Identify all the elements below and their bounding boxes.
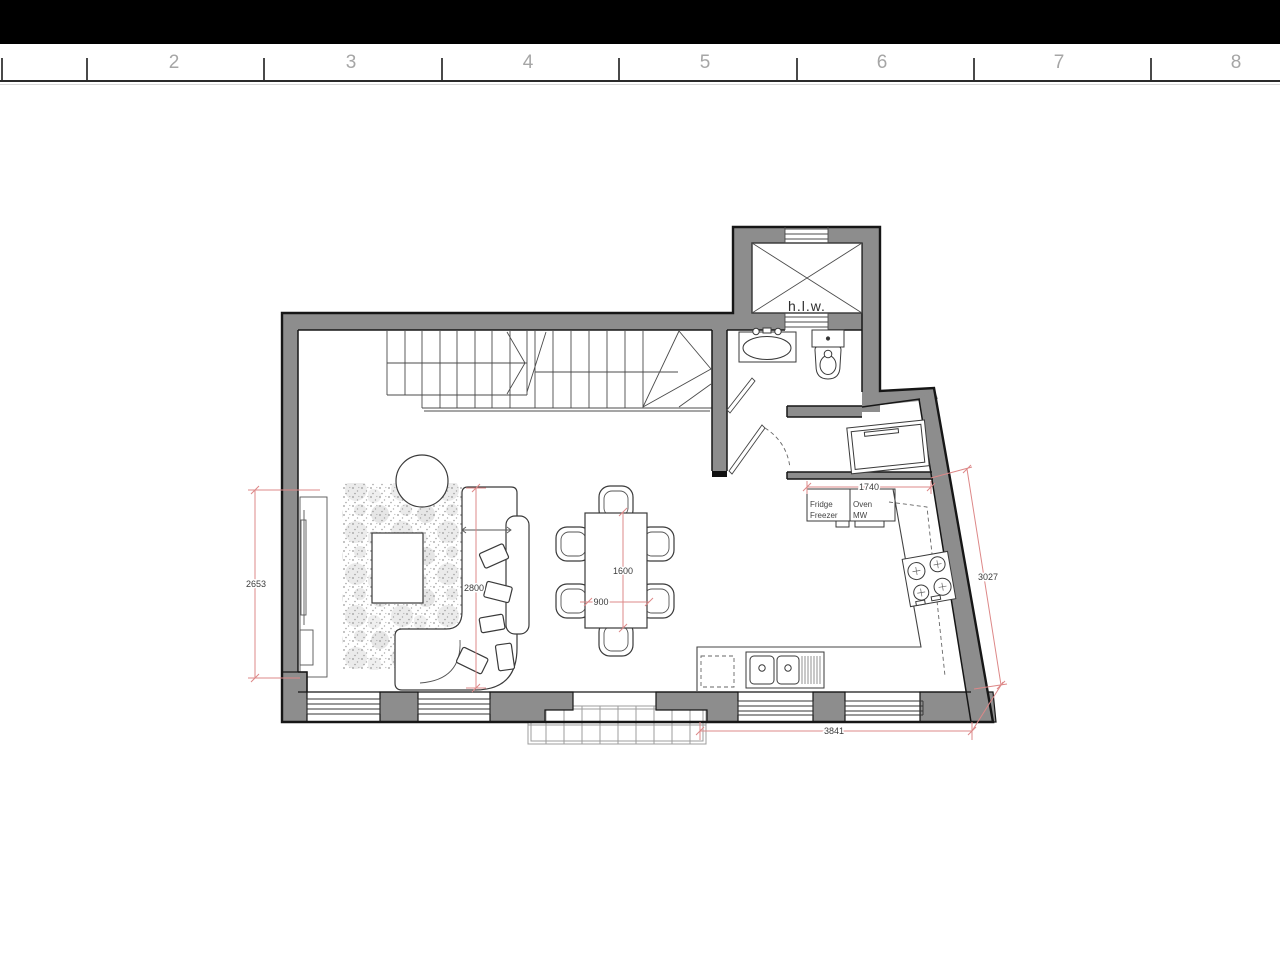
hob [902,551,956,606]
kitchen-unit-labels: Fridge Freezer Oven MW [810,500,872,520]
kitchen-sink [746,652,824,688]
fridge-label-line1: Fridge [810,500,833,509]
dimension-kitchen-side: 3027 [978,572,998,582]
tv-media-unit [300,497,327,677]
dimension-kitchen-run: 3841 [824,726,844,736]
round-side-table [396,455,448,507]
patio-deck [528,706,706,744]
oven-label-line1: Oven [853,500,872,509]
dimension-table-width: 900 [593,597,608,607]
staircase [387,331,712,411]
doors [727,378,790,474]
floor-plan: 2653 2800 1600 900 1740 3027 3841 h.l.w.… [0,0,1280,960]
dishwasher-dashed [701,656,734,687]
dimension-living-depth: 2653 [246,579,266,589]
dimension-living-width: 2800 [464,583,484,593]
dimension-table-length: 1600 [613,566,633,576]
fridge-label-line2: Freezer [810,511,838,520]
oven-label-line2: MW [853,511,868,520]
toilet [812,330,844,379]
utility-unit [847,420,929,474]
app-window: 2 3 4 5 6 7 8 [0,0,1280,960]
basin [739,328,796,362]
coffee-table [372,533,423,603]
dimension-units-run: 1740 [859,482,879,492]
lift-label: h.l.w. [788,298,826,314]
